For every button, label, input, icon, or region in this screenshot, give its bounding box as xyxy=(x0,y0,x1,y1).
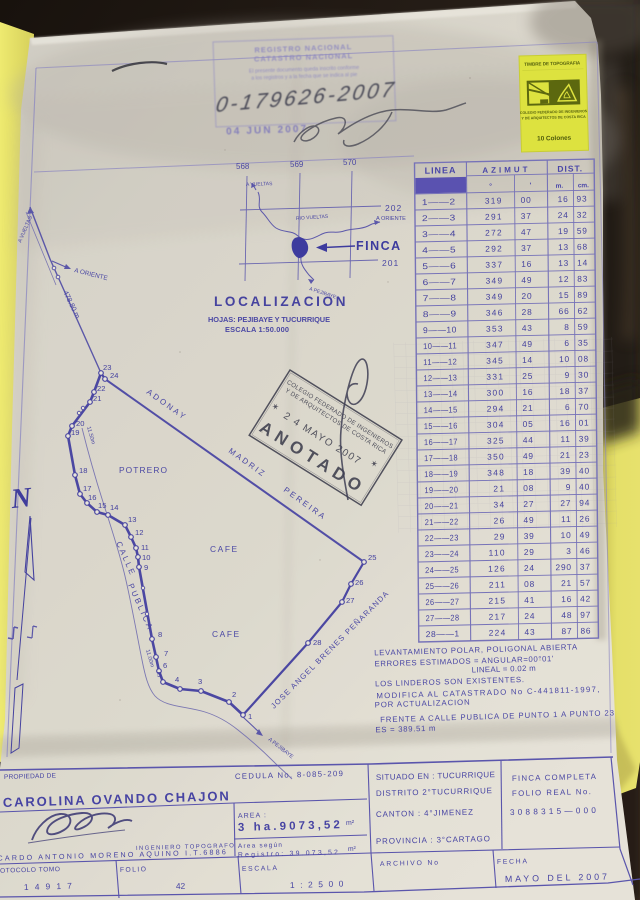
svg-text:224: 224 xyxy=(489,627,507,637)
svg-text:20: 20 xyxy=(76,419,84,428)
svg-text:11: 11 xyxy=(560,434,570,444)
svg-text:337: 337 xyxy=(485,259,503,269)
svg-text:569: 569 xyxy=(290,160,304,169)
svg-text:35: 35 xyxy=(578,337,589,347)
svg-text:43: 43 xyxy=(524,627,535,637)
svg-text:4——5: 4——5 xyxy=(422,244,456,255)
svg-text:12——13: 12——13 xyxy=(423,372,457,383)
svg-text:13: 13 xyxy=(558,258,569,268)
svg-text:42: 42 xyxy=(176,881,186,891)
svg-text:DIST.: DIST. xyxy=(557,163,583,174)
svg-text:1: 1 xyxy=(248,712,252,721)
svg-text:FOLIO: FOLIO xyxy=(120,866,146,874)
svg-text:14: 14 xyxy=(110,503,118,512)
svg-text:21——22: 21——22 xyxy=(425,516,459,527)
svg-text:6: 6 xyxy=(564,338,570,348)
svg-text:39: 39 xyxy=(579,433,590,443)
svg-text:570: 570 xyxy=(343,158,357,167)
svg-text:568: 568 xyxy=(236,162,250,171)
svg-text:319: 319 xyxy=(485,195,503,205)
svg-text:21: 21 xyxy=(93,394,101,403)
svg-text:39: 39 xyxy=(524,531,535,541)
svg-text:29: 29 xyxy=(524,547,535,557)
svg-text:26——27: 26——27 xyxy=(425,596,459,607)
svg-text:22: 22 xyxy=(97,384,105,393)
svg-text:46: 46 xyxy=(580,545,591,555)
svg-text:49: 49 xyxy=(580,529,591,539)
svg-text:9——10: 9——10 xyxy=(423,324,457,335)
svg-text:10: 10 xyxy=(559,354,570,364)
svg-text:28: 28 xyxy=(313,638,321,647)
svg-text:m.: m. xyxy=(556,183,564,190)
svg-text:23——24: 23——24 xyxy=(425,548,459,559)
svg-text:24——25: 24——25 xyxy=(425,564,459,575)
svg-text:Area según: Area según xyxy=(238,842,283,850)
svg-text:37: 37 xyxy=(580,561,591,571)
svg-text:89: 89 xyxy=(577,289,588,299)
svg-text:15: 15 xyxy=(98,501,106,510)
svg-text:42: 42 xyxy=(580,593,591,603)
svg-text:LINEA: LINEA xyxy=(425,165,457,176)
svg-text:34: 34 xyxy=(493,499,505,509)
svg-text:24: 24 xyxy=(558,210,569,220)
svg-text:40: 40 xyxy=(579,465,590,475)
svg-text:5: 5 xyxy=(157,670,161,679)
svg-text:30: 30 xyxy=(578,369,589,379)
svg-text:211: 211 xyxy=(489,579,506,589)
svg-text:18: 18 xyxy=(79,466,87,475)
svg-text:292: 292 xyxy=(485,243,503,253)
svg-text:ESCALA 1:50.000: ESCALA 1:50.000 xyxy=(225,325,289,334)
svg-text:A VUELTAS: A VUELTAS xyxy=(246,181,273,188)
svg-text:21: 21 xyxy=(493,483,505,493)
svg-text:19——20: 19——20 xyxy=(424,484,458,495)
svg-text:345: 345 xyxy=(486,355,504,365)
svg-text:16: 16 xyxy=(522,387,533,397)
svg-text:24: 24 xyxy=(110,371,118,380)
svg-text:300: 300 xyxy=(487,387,505,397)
svg-text:AREA :: AREA : xyxy=(238,812,266,820)
svg-text:70: 70 xyxy=(578,401,589,411)
svg-text:16: 16 xyxy=(560,418,571,428)
svg-text:08: 08 xyxy=(524,579,535,589)
svg-text:27: 27 xyxy=(560,498,571,508)
svg-text:39: 39 xyxy=(560,466,571,476)
svg-text:HOJAS: PEJIBAYE Y TUCURRIQUE: HOJAS: PEJIBAYE Y TUCURRIQUE xyxy=(208,315,330,324)
svg-text:24: 24 xyxy=(524,611,535,621)
svg-text:POTRERO: POTRERO xyxy=(119,465,168,475)
svg-text:28: 28 xyxy=(522,307,533,317)
svg-text:10——11: 10——11 xyxy=(423,340,457,351)
svg-text:37: 37 xyxy=(578,385,589,395)
svg-text:A ORIENTE: A ORIENTE xyxy=(376,216,406,222)
svg-text:21: 21 xyxy=(560,450,571,460)
svg-text:15: 15 xyxy=(558,290,569,300)
svg-text:16: 16 xyxy=(521,259,532,269)
svg-text:14: 14 xyxy=(522,355,533,365)
svg-text:11——12: 11——12 xyxy=(423,356,457,367)
svg-text:16: 16 xyxy=(561,594,572,604)
svg-text:59: 59 xyxy=(577,225,588,235)
svg-text:1——2: 1——2 xyxy=(422,196,456,207)
svg-text:27——28: 27——28 xyxy=(426,612,460,623)
svg-text:08: 08 xyxy=(578,353,589,363)
svg-text:9: 9 xyxy=(144,563,148,572)
svg-text:48: 48 xyxy=(561,610,572,620)
svg-text:00: 00 xyxy=(521,195,532,205)
svg-text:59: 59 xyxy=(578,321,589,331)
svg-text:LINEAL = 0.02 m: LINEAL = 0.02 m xyxy=(472,664,536,675)
svg-text:CAFE: CAFE xyxy=(212,629,241,639)
svg-text:25——26: 25——26 xyxy=(425,580,459,591)
svg-text:26: 26 xyxy=(494,515,506,525)
svg-text:21: 21 xyxy=(561,578,572,588)
svg-text:49: 49 xyxy=(523,515,534,525)
svg-text:4: 4 xyxy=(175,675,179,684)
svg-text:291: 291 xyxy=(485,211,503,221)
svg-text:290: 290 xyxy=(555,562,571,572)
svg-text:294: 294 xyxy=(487,403,505,413)
svg-text:14: 14 xyxy=(577,257,588,267)
svg-text:44: 44 xyxy=(523,435,534,445)
svg-text:2: 2 xyxy=(232,690,236,699)
svg-text:5——6: 5——6 xyxy=(422,260,456,271)
svg-text:349: 349 xyxy=(485,275,503,285)
svg-text:28——1: 28——1 xyxy=(426,628,460,639)
svg-text:10 Colones: 10 Colones xyxy=(537,135,572,143)
svg-text:23: 23 xyxy=(579,449,590,459)
svg-text:15——16: 15——16 xyxy=(424,420,458,431)
svg-text:83: 83 xyxy=(577,273,588,283)
svg-text:41: 41 xyxy=(524,595,535,605)
svg-text:16——17: 16——17 xyxy=(424,436,458,447)
svg-text:27: 27 xyxy=(523,499,534,509)
svg-text:87: 87 xyxy=(561,626,572,636)
svg-text:05: 05 xyxy=(523,419,534,429)
svg-text:49: 49 xyxy=(522,339,533,349)
svg-text:13——14: 13——14 xyxy=(424,388,458,399)
svg-text:m²: m² xyxy=(346,820,355,827)
svg-text:LOCALIZACION: LOCALIZACION xyxy=(214,294,350,309)
svg-text:FINCA: FINCA xyxy=(356,239,402,253)
svg-text:20——21: 20——21 xyxy=(425,500,459,511)
svg-text:22——23: 22——23 xyxy=(425,532,459,543)
svg-text:26: 26 xyxy=(579,513,590,523)
svg-text:6——7: 6——7 xyxy=(423,276,457,287)
svg-text:37: 37 xyxy=(521,243,532,253)
svg-text:346: 346 xyxy=(486,307,504,317)
svg-text:202: 202 xyxy=(385,203,402,213)
svg-text:32: 32 xyxy=(577,209,588,219)
svg-text:49: 49 xyxy=(523,451,534,461)
svg-text:25: 25 xyxy=(368,553,376,562)
svg-text:14——15: 14——15 xyxy=(424,404,458,415)
svg-text:57: 57 xyxy=(580,577,591,587)
svg-text:3——4: 3——4 xyxy=(422,228,456,239)
svg-text:10: 10 xyxy=(142,553,150,562)
svg-text:110: 110 xyxy=(489,547,506,557)
svg-text:8: 8 xyxy=(564,322,570,332)
svg-text:AZIMUT: AZIMUT xyxy=(482,165,530,175)
svg-text:325: 325 xyxy=(487,435,505,445)
svg-text:49: 49 xyxy=(521,275,532,285)
svg-text:08: 08 xyxy=(523,483,534,493)
svg-text:94: 94 xyxy=(579,497,590,507)
svg-text:348: 348 xyxy=(487,467,505,477)
svg-text:3: 3 xyxy=(566,546,572,556)
svg-text:13: 13 xyxy=(128,515,136,524)
svg-text:215: 215 xyxy=(488,595,506,605)
svg-text:8——9: 8——9 xyxy=(423,308,457,319)
svg-text:11: 11 xyxy=(561,514,571,524)
svg-text:12: 12 xyxy=(135,528,143,537)
svg-text:m²: m² xyxy=(348,846,357,853)
svg-text:40: 40 xyxy=(579,481,590,491)
svg-text:12: 12 xyxy=(558,274,569,284)
svg-text:27: 27 xyxy=(346,596,354,605)
svg-text:10: 10 xyxy=(561,530,572,540)
svg-text:350: 350 xyxy=(487,451,505,461)
svg-text:18: 18 xyxy=(523,467,534,477)
svg-text:126: 126 xyxy=(488,563,506,573)
svg-text:9: 9 xyxy=(566,482,572,492)
svg-text:7——8: 7——8 xyxy=(423,292,457,303)
svg-text:18——19: 18——19 xyxy=(424,468,458,479)
svg-text:16: 16 xyxy=(558,194,569,204)
svg-text:29: 29 xyxy=(494,531,506,541)
svg-text:331: 331 xyxy=(486,371,504,381)
svg-text:19: 19 xyxy=(558,226,569,236)
svg-text:201: 201 xyxy=(382,258,399,268)
svg-text:13: 13 xyxy=(558,242,569,252)
svg-text:86: 86 xyxy=(580,625,591,635)
svg-text:17——18: 17——18 xyxy=(424,452,458,463)
svg-text:68: 68 xyxy=(577,241,588,251)
svg-text:cm.: cm. xyxy=(578,182,589,189)
svg-text:6: 6 xyxy=(565,402,571,412)
svg-text:9: 9 xyxy=(565,370,571,380)
svg-text:6: 6 xyxy=(163,661,167,670)
svg-text:26: 26 xyxy=(355,578,363,587)
svg-text:16: 16 xyxy=(88,493,96,502)
svg-text:8: 8 xyxy=(158,630,162,639)
svg-text:66: 66 xyxy=(559,306,570,316)
svg-text:304: 304 xyxy=(487,419,505,429)
svg-text:CAFE: CAFE xyxy=(210,544,239,554)
svg-text:37: 37 xyxy=(521,211,532,221)
svg-text:01: 01 xyxy=(579,417,590,427)
svg-text:ES = 389.51 m: ES = 389.51 m xyxy=(375,724,435,735)
svg-text:97: 97 xyxy=(580,609,591,619)
svg-text:20: 20 xyxy=(521,291,532,301)
svg-text:21: 21 xyxy=(522,403,533,413)
svg-text:62: 62 xyxy=(577,305,588,315)
svg-text:2——3: 2——3 xyxy=(422,212,456,223)
svg-text:353: 353 xyxy=(486,323,504,333)
svg-text:PROPIEDAD DE: PROPIEDAD DE xyxy=(4,773,57,781)
svg-text:43: 43 xyxy=(522,323,533,333)
svg-text:3: 3 xyxy=(198,677,202,686)
svg-text:11: 11 xyxy=(141,543,149,552)
svg-text:347: 347 xyxy=(486,339,504,349)
svg-text:17: 17 xyxy=(83,484,91,493)
svg-text:93: 93 xyxy=(576,193,587,203)
svg-text:349: 349 xyxy=(486,291,504,301)
svg-text:19: 19 xyxy=(71,428,79,437)
svg-text:7: 7 xyxy=(164,649,168,658)
svg-text:18: 18 xyxy=(559,386,570,396)
svg-text:47: 47 xyxy=(521,227,532,237)
svg-text:272: 272 xyxy=(485,227,503,237)
svg-text:217: 217 xyxy=(489,611,507,621)
svg-text:°: ° xyxy=(489,182,492,190)
svg-text:24: 24 xyxy=(524,563,535,573)
svg-text:25: 25 xyxy=(522,371,533,381)
